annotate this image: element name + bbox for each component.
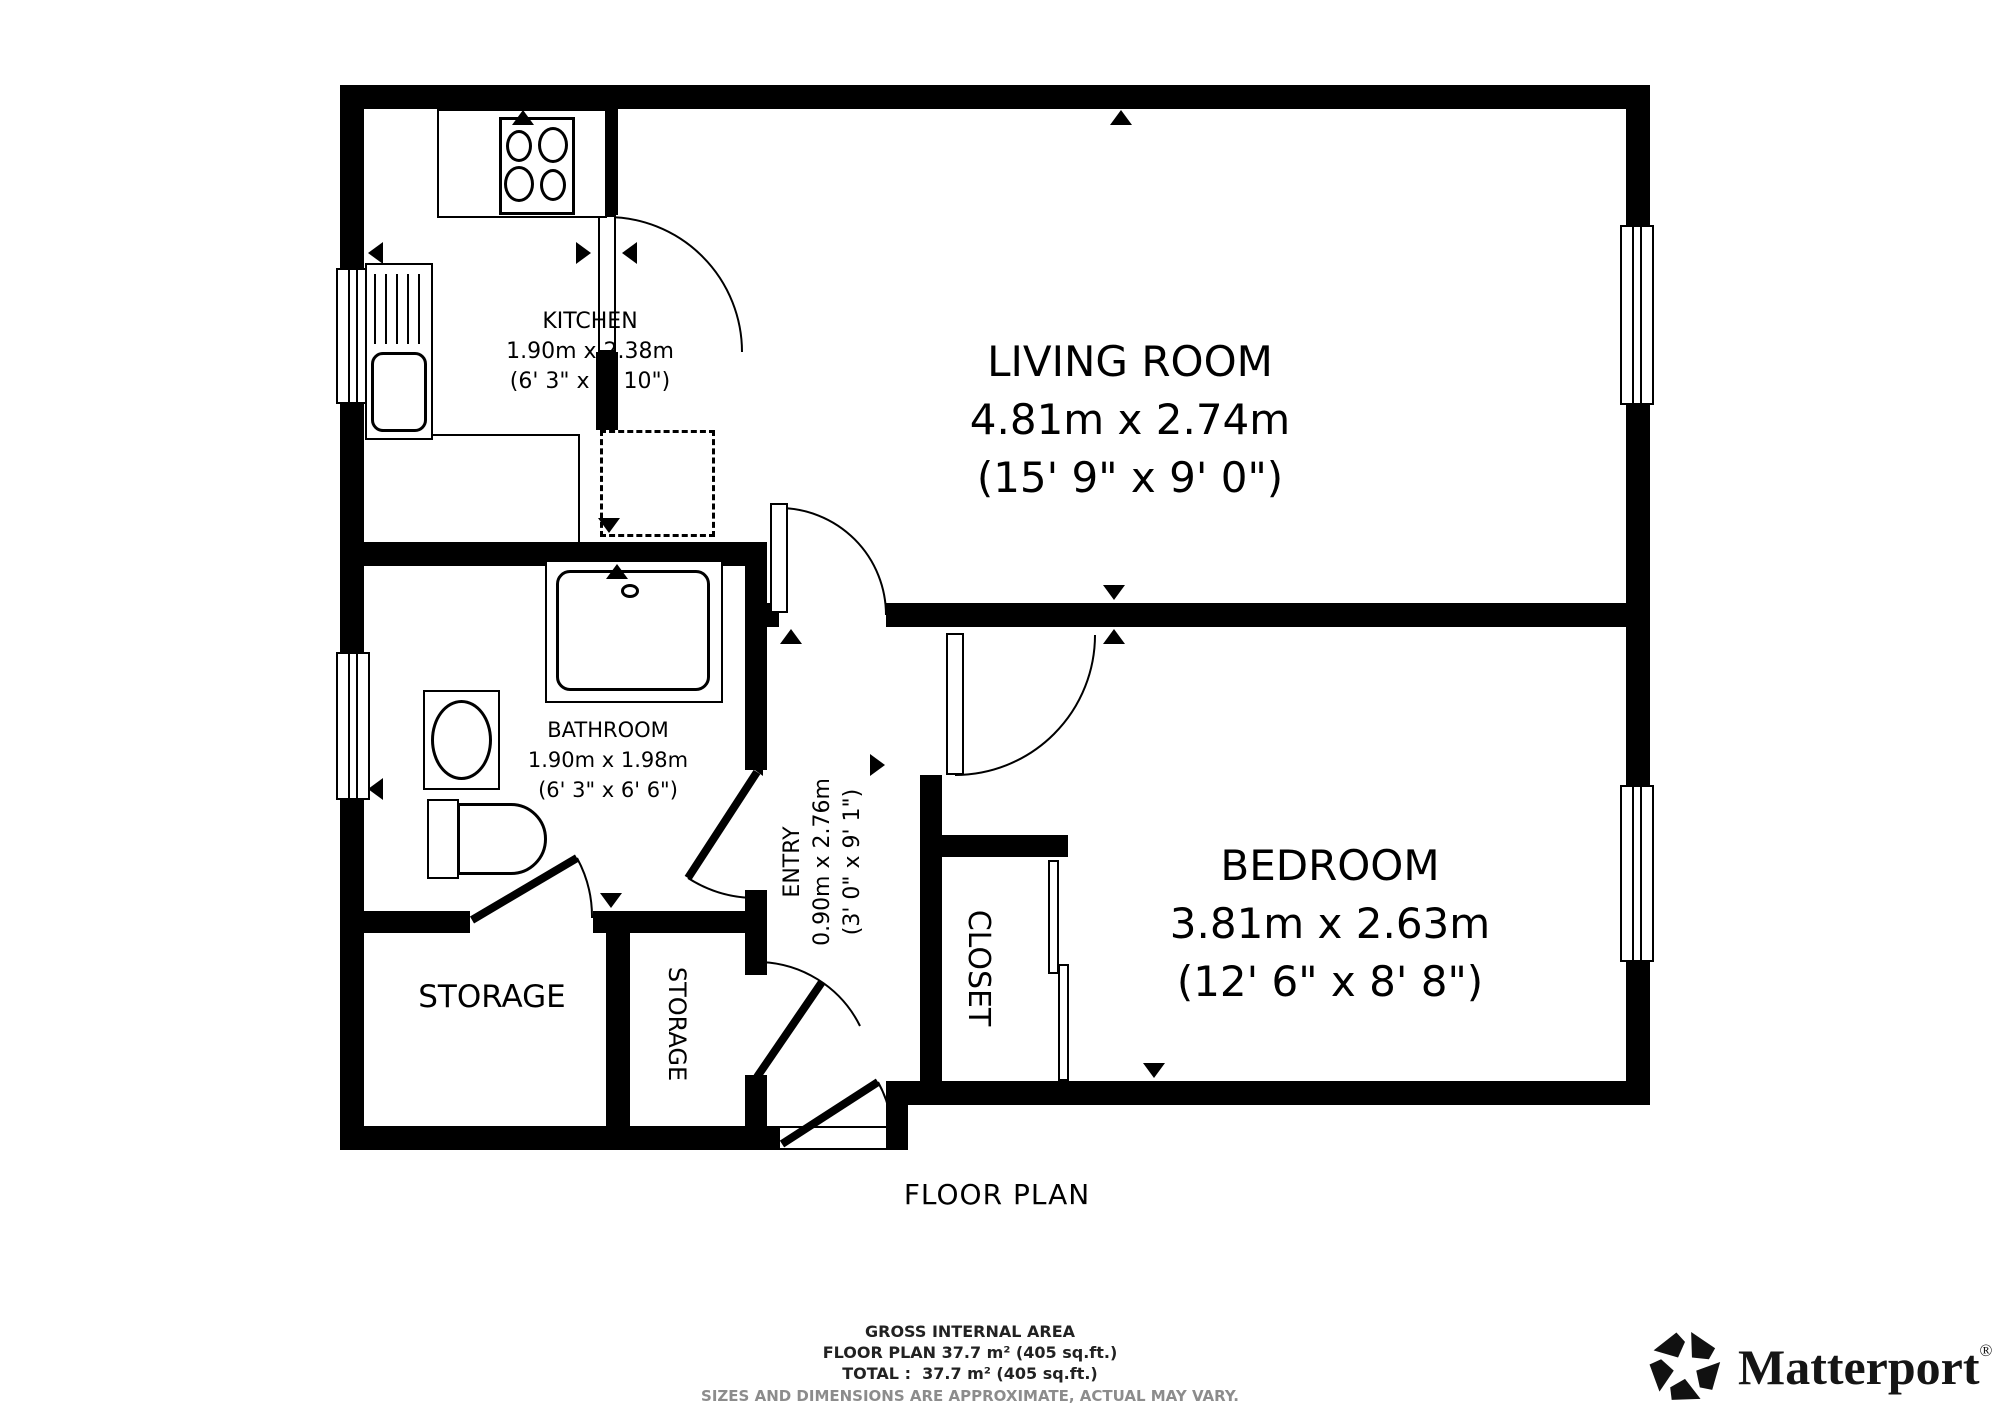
room-name: STORAGE <box>662 914 692 1134</box>
sink-drainer-line <box>418 274 420 344</box>
marker-arrow-up <box>512 110 534 125</box>
marker-arrow-up <box>1110 110 1132 125</box>
room-name: STORAGE <box>342 977 642 1017</box>
marker-arrow-right <box>576 242 591 264</box>
wall-living-bedroom-right <box>886 603 1650 627</box>
marker-arrow-down <box>600 893 622 908</box>
window-bedroom <box>1620 785 1654 962</box>
sink-drainer-line <box>396 274 398 344</box>
room-name: ENTRY <box>778 692 808 1032</box>
room-name: CLOSET <box>958 848 998 1088</box>
entry-living-door-leaf <box>770 503 788 613</box>
window-glass <box>1632 226 1642 404</box>
matterport-wordmark: Matterport® <box>1738 1338 1992 1396</box>
storage-door-arc <box>577 858 592 918</box>
entry-label: ENTRY 0.90m x 2.76m (3' 0" x 9' 1") <box>778 692 874 1032</box>
storage-small-label: STORAGE <box>662 914 692 1134</box>
marker-arrow-left <box>368 242 383 264</box>
marker-arrow-left <box>622 242 637 264</box>
toilet-bowl <box>457 803 547 875</box>
sink-drainer-line <box>374 274 376 344</box>
wall-outer-bottom-left <box>340 1126 780 1150</box>
wall-step-connector <box>886 1081 908 1150</box>
footer-area-title: GROSS INTERNAL AREA <box>570 1322 1370 1341</box>
room-dims-imperial: (15' 9" x 9' 0") <box>900 449 1360 507</box>
window-glass <box>1632 786 1642 961</box>
room-name: LIVING ROOM <box>900 333 1360 391</box>
room-dims-metric: 1.90m x 2.38m <box>440 337 740 367</box>
room-dims-metric: 3.81m x 2.63m <box>1100 895 1560 953</box>
entry-living-door-arc <box>779 508 886 615</box>
wall-storage-divider <box>606 933 630 1126</box>
floor-plan-page: KITCHEN 1.90m x 2.38m (6' 3" x 7' 10") L… <box>0 0 2000 1411</box>
room-dims-metric: 0.90m x 2.76m <box>808 692 838 1032</box>
room-dims-imperial: (6' 3" x 6' 6") <box>458 775 758 805</box>
shower-drain <box>621 584 639 598</box>
room-dims-imperial: (6' 3" x 7' 10") <box>440 367 740 397</box>
registered-mark: ® <box>1980 1341 1993 1360</box>
wall-entry-bedroom <box>920 775 942 1081</box>
window-living-room <box>1620 225 1654 405</box>
toilet-tank <box>427 799 459 879</box>
room-name: BATHROOM <box>458 715 758 745</box>
sink-drainer-line <box>385 274 387 344</box>
storage-large-label: STORAGE <box>342 977 642 1017</box>
closet-label: CLOSET <box>958 848 998 1088</box>
matterport-pinwheel-icon <box>1648 1328 1722 1406</box>
logo-text: Matterport <box>1738 1339 1980 1395</box>
room-dims-metric: 4.81m x 2.74m <box>900 391 1360 449</box>
living-room-label: LIVING ROOM 4.81m x 2.74m (15' 9" x 9' 0… <box>900 333 1360 507</box>
room-dims-metric: 1.90m x 1.98m <box>458 745 758 775</box>
marker-arrow-down <box>1103 585 1125 600</box>
entrance-threshold <box>780 1126 886 1150</box>
marker-arrow-up <box>780 629 802 644</box>
kitchen-label: KITCHEN 1.90m x 2.38m (6' 3" x 7' 10") <box>440 307 740 397</box>
stove-burner <box>504 166 534 202</box>
window-glass <box>348 653 358 799</box>
plan-caption: FLOOR PLAN <box>797 1178 1197 1211</box>
bedroom-door-arc <box>955 635 1095 775</box>
footer-disclaimer: SIZES AND DIMENSIONS ARE APPROXIMATE, AC… <box>570 1387 1370 1405</box>
stove-burner <box>540 169 566 201</box>
kitchen-floor-boundary <box>578 434 580 542</box>
marker-arrow-up <box>1103 629 1125 644</box>
stove-burner <box>506 130 532 162</box>
room-dims-imperial: (3' 0" x 9' 1") <box>838 692 868 1032</box>
window-bathroom <box>336 652 370 800</box>
wall-bathroom-storage-left <box>364 911 470 933</box>
marker-arrow-left <box>368 778 383 800</box>
marker-arrow-down <box>598 518 620 533</box>
marker-arrow-up <box>606 564 628 579</box>
wall-outer-top <box>340 85 1650 109</box>
closet-sliding-panel <box>1048 860 1059 974</box>
marker-arrow-down <box>1143 1063 1165 1078</box>
matterport-logo: Matterport® <box>1648 1328 1992 1406</box>
kitchen-floor-boundary <box>433 434 580 436</box>
room-name: KITCHEN <box>440 307 740 337</box>
wall-outer-bottom-right <box>886 1081 1650 1105</box>
room-name: BEDROOM <box>1100 837 1560 895</box>
stove-burner <box>538 127 568 163</box>
closet-sliding-panel <box>1058 964 1069 1081</box>
kitchen-sink-basin <box>371 352 427 432</box>
bathroom-label: BATHROOM 1.90m x 1.98m (6' 3" x 6' 6") <box>458 715 758 805</box>
window-glass <box>348 269 358 403</box>
sink-drainer-line <box>407 274 409 344</box>
room-dims-imperial: (12' 6" x 8' 8") <box>1100 953 1560 1011</box>
wall-entry-storage-lower <box>745 1075 767 1126</box>
bedroom-door-leaf <box>946 633 964 775</box>
footer-total-area: TOTAL : 37.7 m² (405 sq.ft.) <box>570 1364 1370 1383</box>
footer-floor-plan-area: FLOOR PLAN 37.7 m² (405 sq.ft.) <box>570 1343 1370 1362</box>
bedroom-label: BEDROOM 3.81m x 2.63m (12' 6" x 8' 8") <box>1100 837 1560 1011</box>
